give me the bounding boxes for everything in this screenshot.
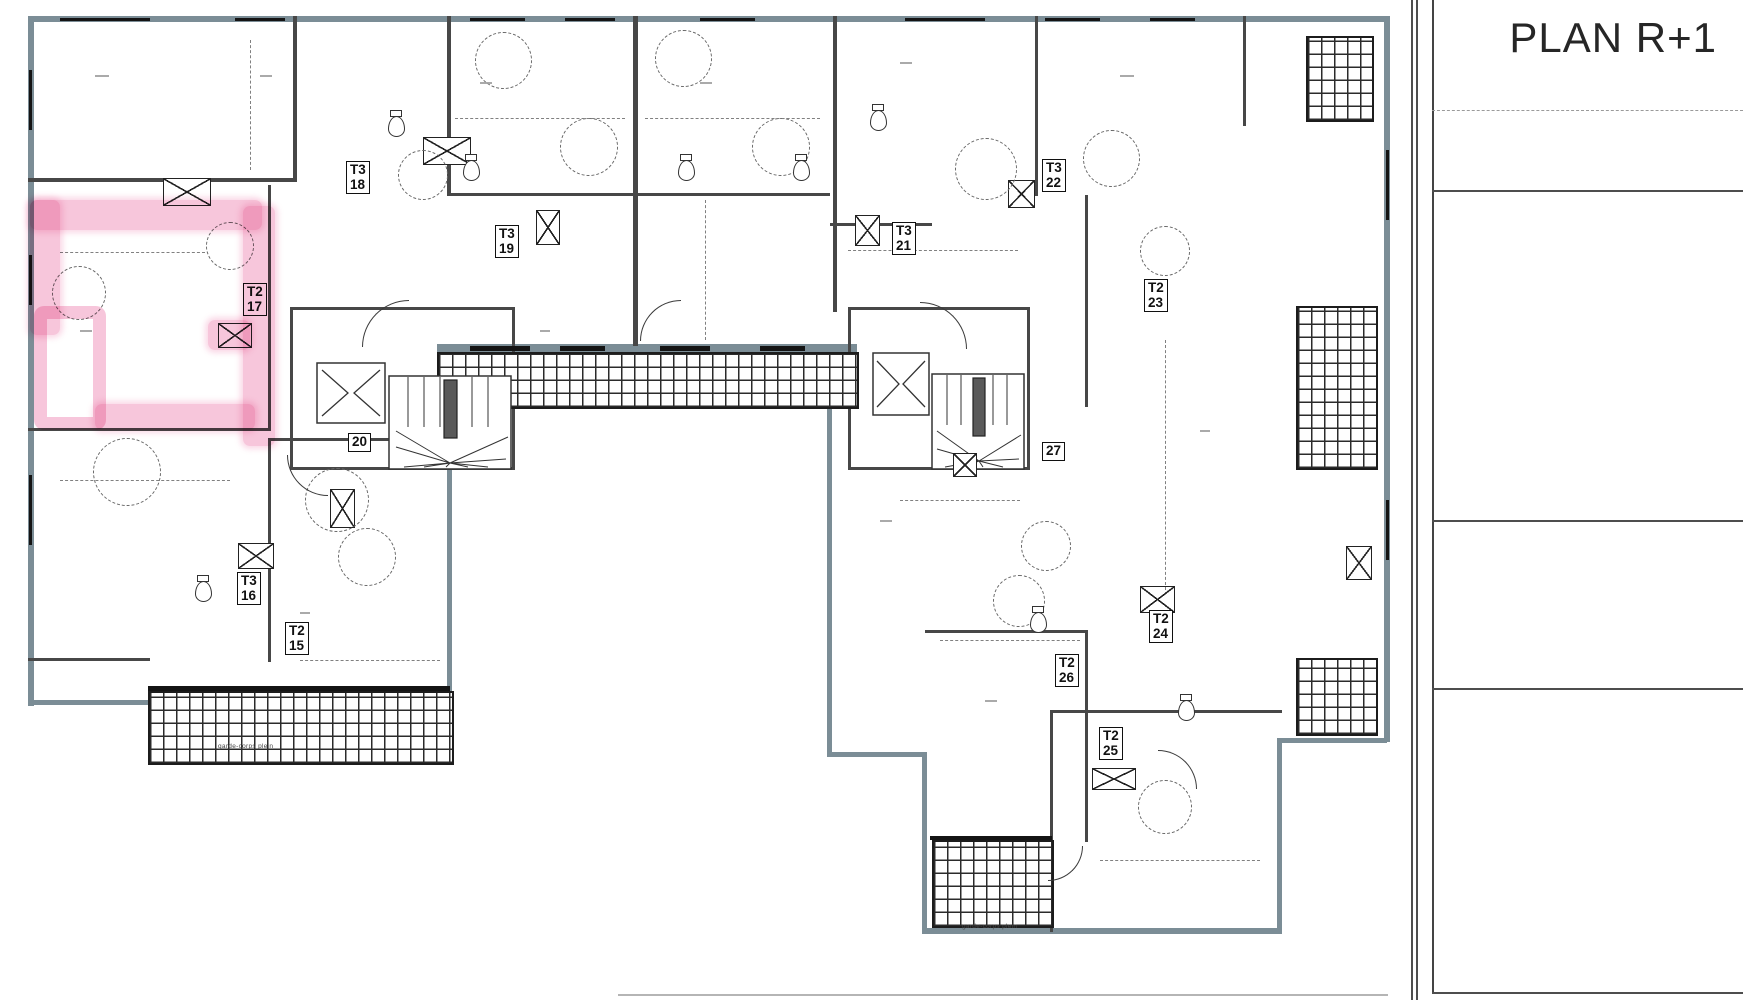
- interior-wall: [290, 307, 293, 470]
- shaft-x-icon: [855, 215, 880, 246]
- dim-line: [1165, 340, 1166, 590]
- window-bar: [1045, 18, 1100, 21]
- unit-type: T2: [1153, 612, 1169, 627]
- annotation-tick: [480, 82, 492, 84]
- titleblock-line: [1432, 520, 1743, 522]
- window-bar: [660, 346, 710, 351]
- unit-type: T3: [896, 224, 912, 239]
- unit-type: T3: [350, 163, 366, 178]
- interior-wall: [1050, 710, 1282, 713]
- interior-wall: [830, 223, 932, 226]
- shaft-x-icon: [1140, 586, 1175, 613]
- interior-wall: [450, 193, 635, 196]
- dim-line: [900, 500, 1020, 501]
- unit-number: 16: [241, 589, 257, 604]
- balcony-grid: [1296, 306, 1378, 470]
- window-bar: [1386, 150, 1389, 220]
- unit-number: 23: [1148, 296, 1164, 311]
- shaft-x-icon: [238, 543, 274, 569]
- unit-label-27: 27: [1042, 442, 1065, 461]
- interior-wall: [293, 16, 297, 182]
- wall: [827, 752, 927, 757]
- annotation-tick: [1200, 430, 1210, 432]
- interior-wall: [1035, 16, 1038, 196]
- interior-wall: [447, 16, 451, 196]
- plan-title: PLAN R+1: [1434, 16, 1717, 60]
- annotation-tick: [260, 75, 272, 77]
- dim-line: [940, 640, 1080, 641]
- window-bar: [29, 475, 32, 545]
- door-arc: [640, 300, 681, 341]
- interior-wall: [1085, 195, 1088, 407]
- balcony-grid: [1306, 36, 1374, 122]
- turning-circle: [475, 32, 532, 89]
- turning-circle: [338, 528, 396, 586]
- unit-type: T3: [499, 227, 515, 242]
- balcony-caption: garde-corps plein: [962, 924, 1017, 931]
- toilet-icon: [870, 110, 887, 131]
- stairwell-icon: [931, 373, 1025, 470]
- titleblock-line: [1432, 190, 1743, 192]
- annotation-tick: [700, 82, 712, 84]
- wall: [28, 700, 150, 705]
- window-bar: [905, 18, 985, 21]
- window-bar: [565, 18, 615, 21]
- unit-number: 24: [1153, 627, 1169, 642]
- turning-circle: [955, 138, 1017, 200]
- unit-type: T2: [1148, 281, 1164, 296]
- shaft-x-icon: [1092, 768, 1136, 790]
- interior-wall: [833, 16, 837, 312]
- titleblock-border: [1432, 0, 1434, 993]
- toilet-icon: [678, 160, 695, 181]
- balcony-caption: garde-corps plein: [218, 744, 273, 751]
- elevator-icon: [316, 362, 386, 424]
- wall: [922, 752, 927, 933]
- interior-wall: [638, 193, 830, 196]
- dim-line: [60, 252, 205, 253]
- window-bar: [470, 18, 525, 21]
- shaft-x-icon: [953, 453, 977, 477]
- annotation-tick: [985, 700, 997, 702]
- window-bar: [60, 18, 150, 21]
- dim-line: [60, 480, 230, 481]
- toilet-icon: [388, 116, 405, 137]
- annotation-tick: [540, 330, 550, 332]
- sheet-divider: [1411, 0, 1413, 1000]
- turning-circle: [655, 30, 712, 87]
- unit-label-t2-26: T2 26: [1055, 654, 1079, 687]
- unit-type: T3: [241, 574, 257, 589]
- unit-label-t3-16: T3 16: [237, 572, 261, 605]
- unit-label-20: 20: [348, 433, 371, 452]
- toilet-icon: [195, 581, 212, 602]
- door-arc: [1158, 750, 1197, 789]
- window-bar: [760, 346, 805, 351]
- turning-circle: [1021, 521, 1071, 571]
- titleblock-line: [1432, 992, 1743, 994]
- toilet-icon: [1178, 700, 1195, 721]
- interior-wall: [28, 178, 296, 182]
- annotation-tick: [880, 520, 892, 522]
- unit-number: 27: [1046, 444, 1061, 459]
- unit-number: 21: [896, 239, 912, 254]
- unit-number: 18: [350, 178, 366, 193]
- page-edge-line: [618, 994, 1388, 996]
- turning-circle: [560, 118, 618, 176]
- dim-line: [645, 118, 820, 119]
- interior-wall: [633, 16, 638, 346]
- unit-number: 19: [499, 242, 515, 257]
- interior-wall: [28, 658, 150, 661]
- turning-circle: [1083, 130, 1140, 187]
- highlight-t2-17: [30, 200, 262, 230]
- dim-line: [250, 40, 251, 170]
- turning-circle: [398, 150, 448, 200]
- shaft-x-icon: [536, 210, 560, 245]
- turning-circle: [93, 438, 161, 506]
- dim-line: [1100, 860, 1260, 861]
- scanned-floor-plan-sheet: T3 18 T3 19 T2 17 20 T3 16 T2 15 T3 22 T…: [0, 0, 1743, 1000]
- unit-number: 15: [289, 639, 305, 654]
- interior-wall: [1027, 307, 1030, 470]
- annotation-tick: [900, 62, 912, 64]
- dim-line: [848, 250, 1018, 251]
- unit-label-t3-18: T3 18: [346, 161, 370, 194]
- dim-line: [455, 118, 625, 119]
- unit-label-t3-21: T3 21: [892, 222, 916, 255]
- wall: [1277, 738, 1282, 932]
- wall: [1277, 738, 1387, 743]
- unit-number: 25: [1103, 744, 1119, 759]
- wall: [827, 405, 832, 757]
- unit-label-t2-23: T2 23: [1144, 279, 1168, 312]
- unit-label-t2-25: T2 25: [1099, 727, 1123, 760]
- unit-number: 22: [1046, 176, 1062, 191]
- window-bar: [700, 18, 755, 21]
- balcony-grid: [1296, 658, 1378, 736]
- unit-label-t3-22: T3 22: [1042, 159, 1066, 192]
- unit-label-t2-24: T2 24: [1149, 610, 1173, 643]
- unit-label-t2-15: T2 15: [285, 622, 309, 655]
- window-bar: [29, 70, 32, 130]
- unit-number: 20: [352, 435, 367, 450]
- unit-type: T2: [1059, 656, 1075, 671]
- unit-type: T2: [289, 624, 305, 639]
- interior-wall: [925, 630, 1087, 633]
- toilet-icon: [793, 160, 810, 181]
- titleblock-line-dashed: [1432, 110, 1743, 111]
- interior-wall: [1085, 630, 1088, 842]
- window-bar: [560, 346, 605, 351]
- unit-type: T3: [1046, 161, 1062, 176]
- dim-line: [705, 200, 706, 340]
- window-bar: [1150, 18, 1195, 21]
- wall: [1384, 16, 1390, 742]
- balcony-grid: [148, 691, 454, 765]
- shaft-x-icon: [1346, 546, 1372, 580]
- window-bar: [235, 18, 285, 21]
- door-arc: [287, 455, 328, 496]
- interior-wall: [1243, 16, 1246, 126]
- unit-label-t3-19: T3 19: [495, 225, 519, 258]
- elevator-icon: [872, 352, 930, 416]
- highlight-t2-17: [95, 404, 255, 430]
- unit-type: T2: [1103, 729, 1119, 744]
- toilet-icon: [463, 160, 480, 181]
- window-bar: [470, 346, 530, 351]
- dim-line: [300, 660, 440, 661]
- balcony-grid: [932, 840, 1054, 928]
- toilet-icon: [1030, 612, 1047, 633]
- stairwell-icon: [388, 375, 512, 470]
- unit-number: 26: [1059, 671, 1075, 686]
- annotation-tick: [300, 612, 310, 614]
- titleblock-line: [1432, 688, 1743, 690]
- sheet-divider: [1416, 0, 1418, 1000]
- turning-circle: [1140, 226, 1190, 276]
- annotation-tick: [95, 75, 109, 77]
- window-bar: [1386, 500, 1389, 560]
- highlight-t2-17: [208, 320, 250, 350]
- door-arc: [1048, 846, 1083, 881]
- annotation-tick: [1120, 75, 1134, 77]
